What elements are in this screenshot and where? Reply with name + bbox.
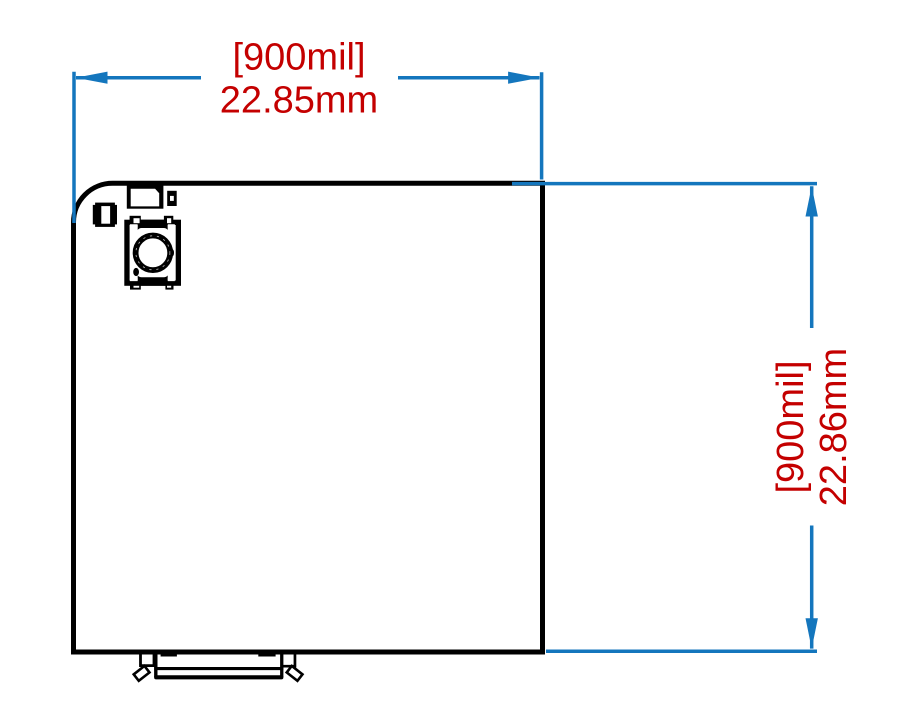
svg-text:[900mil]: [900mil]: [770, 360, 812, 493]
svg-text:[900mil]: [900mil]: [232, 36, 365, 78]
svg-text:22.85mm: 22.85mm: [220, 79, 378, 121]
svg-text:22.86mm: 22.86mm: [813, 348, 855, 506]
